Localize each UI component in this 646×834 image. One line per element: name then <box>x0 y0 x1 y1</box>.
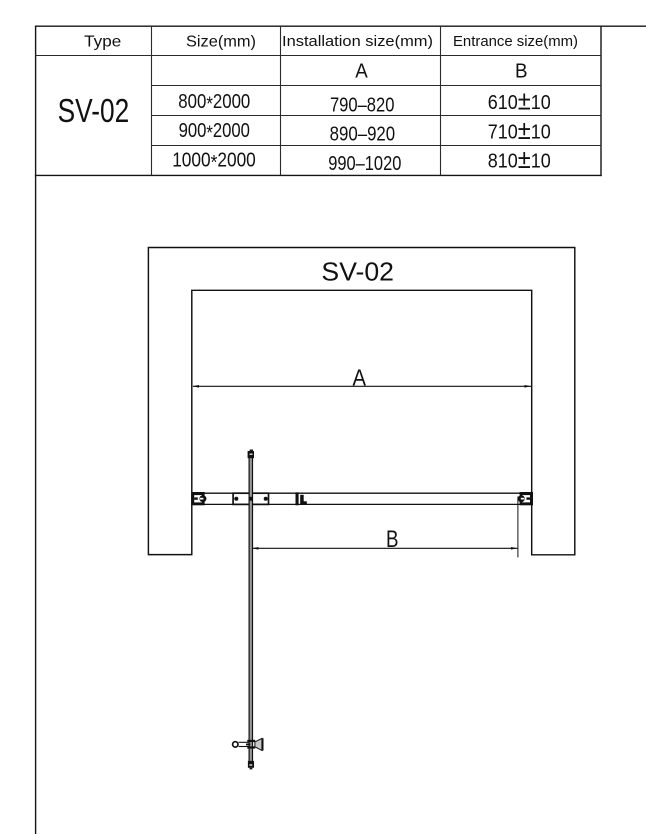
svg-text:790–820: 790–820 <box>330 94 395 117</box>
svg-text:Installation size(mm): Installation size(mm) <box>282 34 433 50</box>
svg-text:SV-02: SV-02 <box>58 92 130 129</box>
svg-text:800*2000: 800*2000 <box>178 90 250 116</box>
svg-text:890–920: 890–920 <box>330 122 396 145</box>
svg-text:810±10: 810±10 <box>488 144 551 174</box>
svg-text:Entrance size(mm): Entrance size(mm) <box>453 34 578 50</box>
svg-text:B: B <box>515 60 528 82</box>
svg-text:900*2000: 900*2000 <box>179 119 250 145</box>
svg-text:B: B <box>386 526 399 553</box>
svg-text:Size(mm): Size(mm) <box>186 34 256 51</box>
svg-text:Type: Type <box>84 34 121 51</box>
svg-text:A: A <box>355 60 368 82</box>
svg-text:SV-02: SV-02 <box>321 256 394 286</box>
svg-text:610±10: 610±10 <box>488 85 551 115</box>
svg-text:990–1020: 990–1020 <box>328 152 401 175</box>
svg-text:710±10: 710±10 <box>488 115 551 145</box>
svg-text:A: A <box>352 364 366 390</box>
svg-text:1000*2000: 1000*2000 <box>172 148 256 174</box>
